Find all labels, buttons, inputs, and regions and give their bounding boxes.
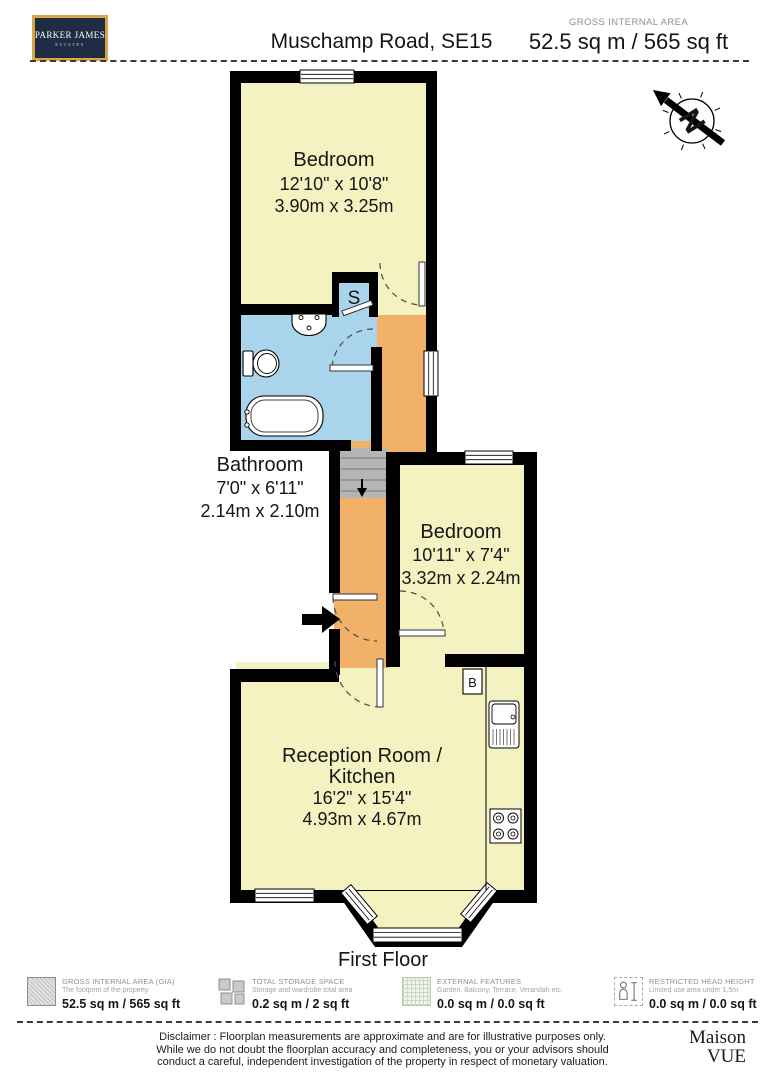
- bathroom-name: Bathroom: [217, 454, 304, 476]
- bathroom-door-leaf: [330, 365, 373, 371]
- toilet-icon: [243, 350, 279, 377]
- legend-subtitle: Limited use area under 1.5m: [649, 987, 757, 994]
- bathtub-icon: [245, 396, 323, 436]
- bathroom-metric: 2.14m x 2.10m: [200, 501, 319, 521]
- disclaimer-line: conduct a careful, independent investiga…: [60, 1056, 705, 1069]
- legend-item-external: EXTERNAL FEATURES Garden, Balcony, Terra…: [402, 977, 563, 1011]
- bedroom2-name: Bedroom: [420, 521, 501, 543]
- bedroom2-door-leaf: [399, 630, 445, 636]
- bedroom1-imperial: 12'10" x 10'8": [280, 174, 389, 194]
- reception-name-2: Kitchen: [329, 766, 396, 788]
- storage-blocks-icon: [217, 977, 246, 1006]
- reception-imperial: 16'2" x 15'4": [313, 788, 412, 808]
- bedroom2-door-threshold: [400, 654, 445, 667]
- hob-icon: [490, 809, 521, 843]
- floor-label: First Floor: [338, 949, 428, 971]
- bedroom2-metric: 3.32m x 2.24m: [401, 568, 520, 588]
- window-reception-icon: [255, 889, 314, 902]
- window-bay-bottom-icon: [373, 928, 462, 942]
- legend-value: 0.2 sq m / 2 sq ft: [252, 997, 352, 1011]
- legend-value: 52.5 sq m / 565 sq ft: [62, 997, 180, 1011]
- window-bedroom1-icon: [300, 70, 354, 83]
- storage-label: S: [348, 288, 361, 309]
- bedroom1-metric: 3.90m x 3.25m: [274, 196, 393, 216]
- external-grid-icon: [402, 977, 431, 1006]
- window-hallway-icon: [424, 351, 438, 396]
- floorplan-canvas: B: [0, 0, 763, 1080]
- legend-title: GROSS INTERNAL AREA (GIA): [62, 977, 180, 986]
- brand-line-2: VUE: [689, 1047, 746, 1066]
- legend-subtitle: Garden, Balcony, Terrace, Verandah etc.: [437, 987, 563, 994]
- boiler-label: B: [468, 675, 477, 690]
- disclaimer-line: While we do not doubt the floorplan accu…: [60, 1044, 705, 1057]
- basin-icon: [292, 314, 326, 336]
- legend-subtitle: The footprint of the property: [62, 987, 180, 994]
- legend-title: RESTRICTED HEAD HEIGHT: [649, 977, 757, 986]
- disclaimer-line: Disclaimer : Floorplan measurements are …: [60, 1031, 705, 1044]
- entry-door-leaf: [333, 594, 377, 600]
- boiler-icon: B: [463, 669, 482, 694]
- legend-value: 0.0 sq m / 0.0 sq ft: [649, 997, 757, 1011]
- person-height-icon: [614, 977, 643, 1006]
- gia-hatch-icon: [27, 977, 56, 1006]
- dashed-separator-bottom: [17, 1021, 758, 1023]
- floorplan-page: PARKER JAMES ESTATES Muschamp Road, SE15…: [0, 0, 763, 1080]
- bathroom-imperial: 7'0" x 6'11": [216, 478, 303, 498]
- reception-metric: 4.93m x 4.67m: [302, 809, 421, 829]
- legend-title: EXTERNAL FEATURES: [437, 977, 563, 986]
- bedroom1-name: Bedroom: [293, 149, 374, 171]
- bedroom1-door-leaf: [419, 262, 425, 306]
- legend-item-gia: GROSS INTERNAL AREA (GIA) The footprint …: [27, 977, 180, 1011]
- bedroom2-imperial: 10'11" x 7'4": [412, 545, 509, 565]
- legend-item-storage: TOTAL STORAGE SPACE Storage and wardrobe…: [217, 977, 352, 1011]
- legend-title: TOTAL STORAGE SPACE: [252, 977, 352, 986]
- brand-logo: Maison VUE: [689, 1028, 746, 1066]
- brand-line-1: Maison: [689, 1028, 746, 1047]
- kitchen-sink-icon: [489, 701, 519, 748]
- reception-name-1: Reception Room /: [282, 745, 443, 767]
- north-arrow: N: [653, 90, 723, 150]
- disclaimer-text: Disclaimer : Floorplan measurements are …: [60, 1031, 705, 1069]
- legend-value: 0.0 sq m / 0.0 sq ft: [437, 997, 563, 1011]
- legend-item-restricted: RESTRICTED HEAD HEIGHT Limited use area …: [614, 977, 757, 1011]
- reception-door-leaf: [377, 659, 383, 707]
- legend-subtitle: Storage and wardrobe total area: [252, 987, 352, 994]
- window-bedroom2-icon: [465, 451, 513, 464]
